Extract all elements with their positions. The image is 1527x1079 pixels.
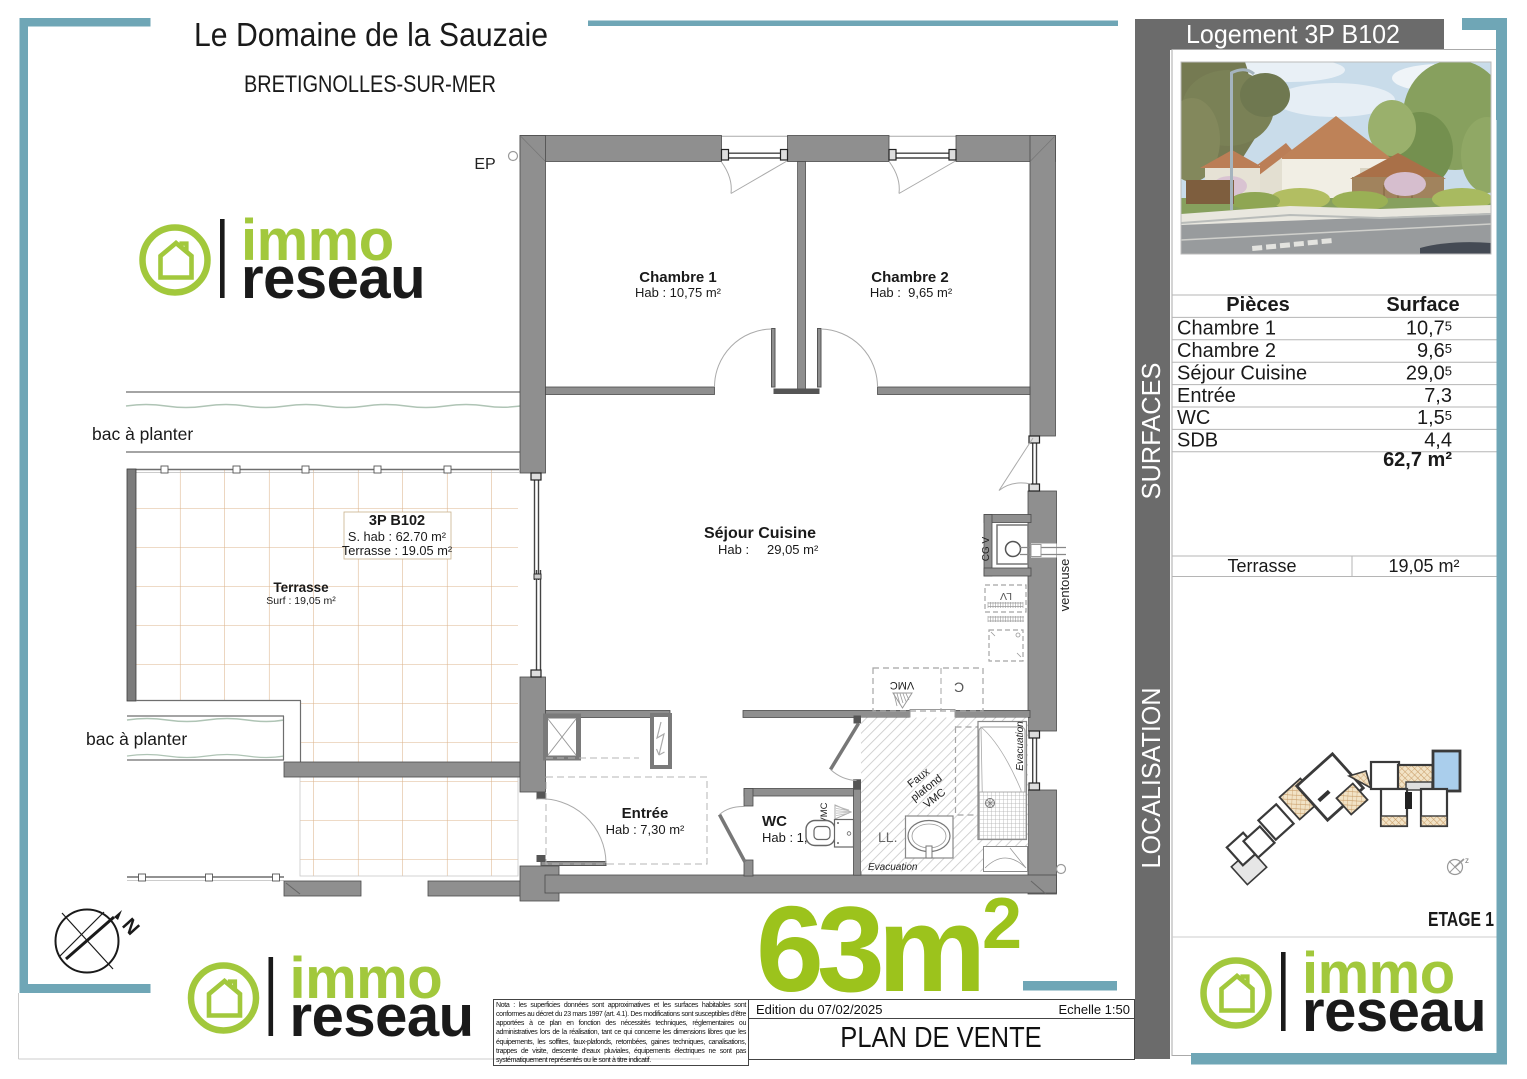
svg-text:Chambre 1: Chambre 1 bbox=[639, 269, 717, 286]
svg-text:EP: EP bbox=[474, 156, 495, 173]
svg-text:ETAGE 1: ETAGE 1 bbox=[1428, 909, 1494, 931]
svg-text:S. hab : 62.70 m²: S. hab : 62.70 m² bbox=[348, 529, 447, 544]
svg-text:9,65: 9,65 bbox=[1417, 340, 1452, 362]
svg-text:10,75: 10,75 bbox=[1406, 318, 1452, 340]
svg-text:Surf : 19,05 m²: Surf : 19,05 m² bbox=[266, 595, 336, 607]
svg-text:Hab : 7,30 m²: Hab : 7,30 m² bbox=[606, 822, 685, 837]
svg-text:z: z bbox=[1465, 856, 1469, 865]
svg-text:LL.: LL. bbox=[878, 829, 897, 845]
svg-text:Surface: Surface bbox=[1386, 294, 1459, 316]
svg-text:63m: 63m bbox=[756, 881, 979, 1017]
svg-text:SDB: SDB bbox=[1177, 430, 1218, 452]
svg-text:Chambre 2: Chambre 2 bbox=[871, 269, 949, 286]
svg-text:Evacuation: Evacuation bbox=[1015, 721, 1026, 771]
svg-text:bac à planter: bac à planter bbox=[92, 424, 193, 444]
svg-text:1,55: 1,55 bbox=[1417, 407, 1452, 429]
svg-text:Ɔ: Ɔ bbox=[954, 679, 964, 695]
svg-text:Terrasse : 19.05 m²: Terrasse : 19.05 m² bbox=[342, 543, 453, 558]
svg-text:Pièces: Pièces bbox=[1226, 294, 1289, 316]
svg-text:WC: WC bbox=[762, 813, 787, 830]
svg-text:BRETIGNOLLES-SUR-MER: BRETIGNOLLES-SUR-MER bbox=[244, 71, 496, 98]
svg-text:Logement 3P B102: Logement 3P B102 bbox=[1186, 19, 1400, 49]
svg-text:Entrée: Entrée bbox=[622, 805, 669, 822]
svg-text:62,7 m²: 62,7 m² bbox=[1383, 449, 1452, 471]
svg-text:VMC: VMC bbox=[890, 679, 915, 691]
svg-text:SURFACES: SURFACES bbox=[1136, 363, 1166, 500]
svg-text:Le Domaine de la Sauzaie: Le Domaine de la Sauzaie bbox=[194, 16, 548, 53]
svg-text:Entrée: Entrée bbox=[1177, 385, 1236, 407]
svg-text:29,05 m²: 29,05 m² bbox=[767, 542, 819, 557]
svg-text:reseau: reseau bbox=[241, 246, 425, 311]
svg-text:CG V: CG V bbox=[981, 536, 992, 561]
svg-text:WC: WC bbox=[1177, 407, 1210, 429]
svg-text:Hab : 10,75 m²: Hab : 10,75 m² bbox=[635, 285, 722, 300]
svg-text:2: 2 bbox=[982, 884, 1022, 964]
svg-text:reseau: reseau bbox=[290, 984, 474, 1049]
svg-text:3P B102: 3P B102 bbox=[369, 513, 425, 529]
svg-text:ventouse: ventouse bbox=[1057, 559, 1072, 612]
svg-text:LV: LV bbox=[1000, 590, 1012, 602]
svg-text:Terrasse: Terrasse bbox=[1227, 556, 1296, 576]
svg-text:19,05 m²: 19,05 m² bbox=[1388, 556, 1459, 576]
svg-text:29,05: 29,05 bbox=[1406, 362, 1452, 384]
svg-text:LOCALISATION: LOCALISATION bbox=[1136, 688, 1166, 869]
svg-text:Séjour Cuisine: Séjour Cuisine bbox=[1177, 362, 1307, 384]
svg-text:Chambre 1: Chambre 1 bbox=[1177, 318, 1276, 340]
svg-text:7,3: 7,3 bbox=[1424, 385, 1452, 407]
svg-text:Evacuation: Evacuation bbox=[868, 862, 918, 873]
svg-text:Chambre 2: Chambre 2 bbox=[1177, 340, 1276, 362]
svg-text:N: N bbox=[117, 914, 143, 939]
svg-text:Hab :: Hab : bbox=[718, 542, 749, 557]
svg-text:Séjour Cuisine: Séjour Cuisine bbox=[704, 525, 816, 542]
svg-text:reseau: reseau bbox=[1302, 979, 1486, 1044]
svg-text:bac à planter: bac à planter bbox=[86, 729, 187, 749]
svg-text:Hab : 9,65 m²: Hab : 9,65 m² bbox=[870, 285, 953, 300]
svg-text:Terrasse: Terrasse bbox=[273, 580, 329, 595]
